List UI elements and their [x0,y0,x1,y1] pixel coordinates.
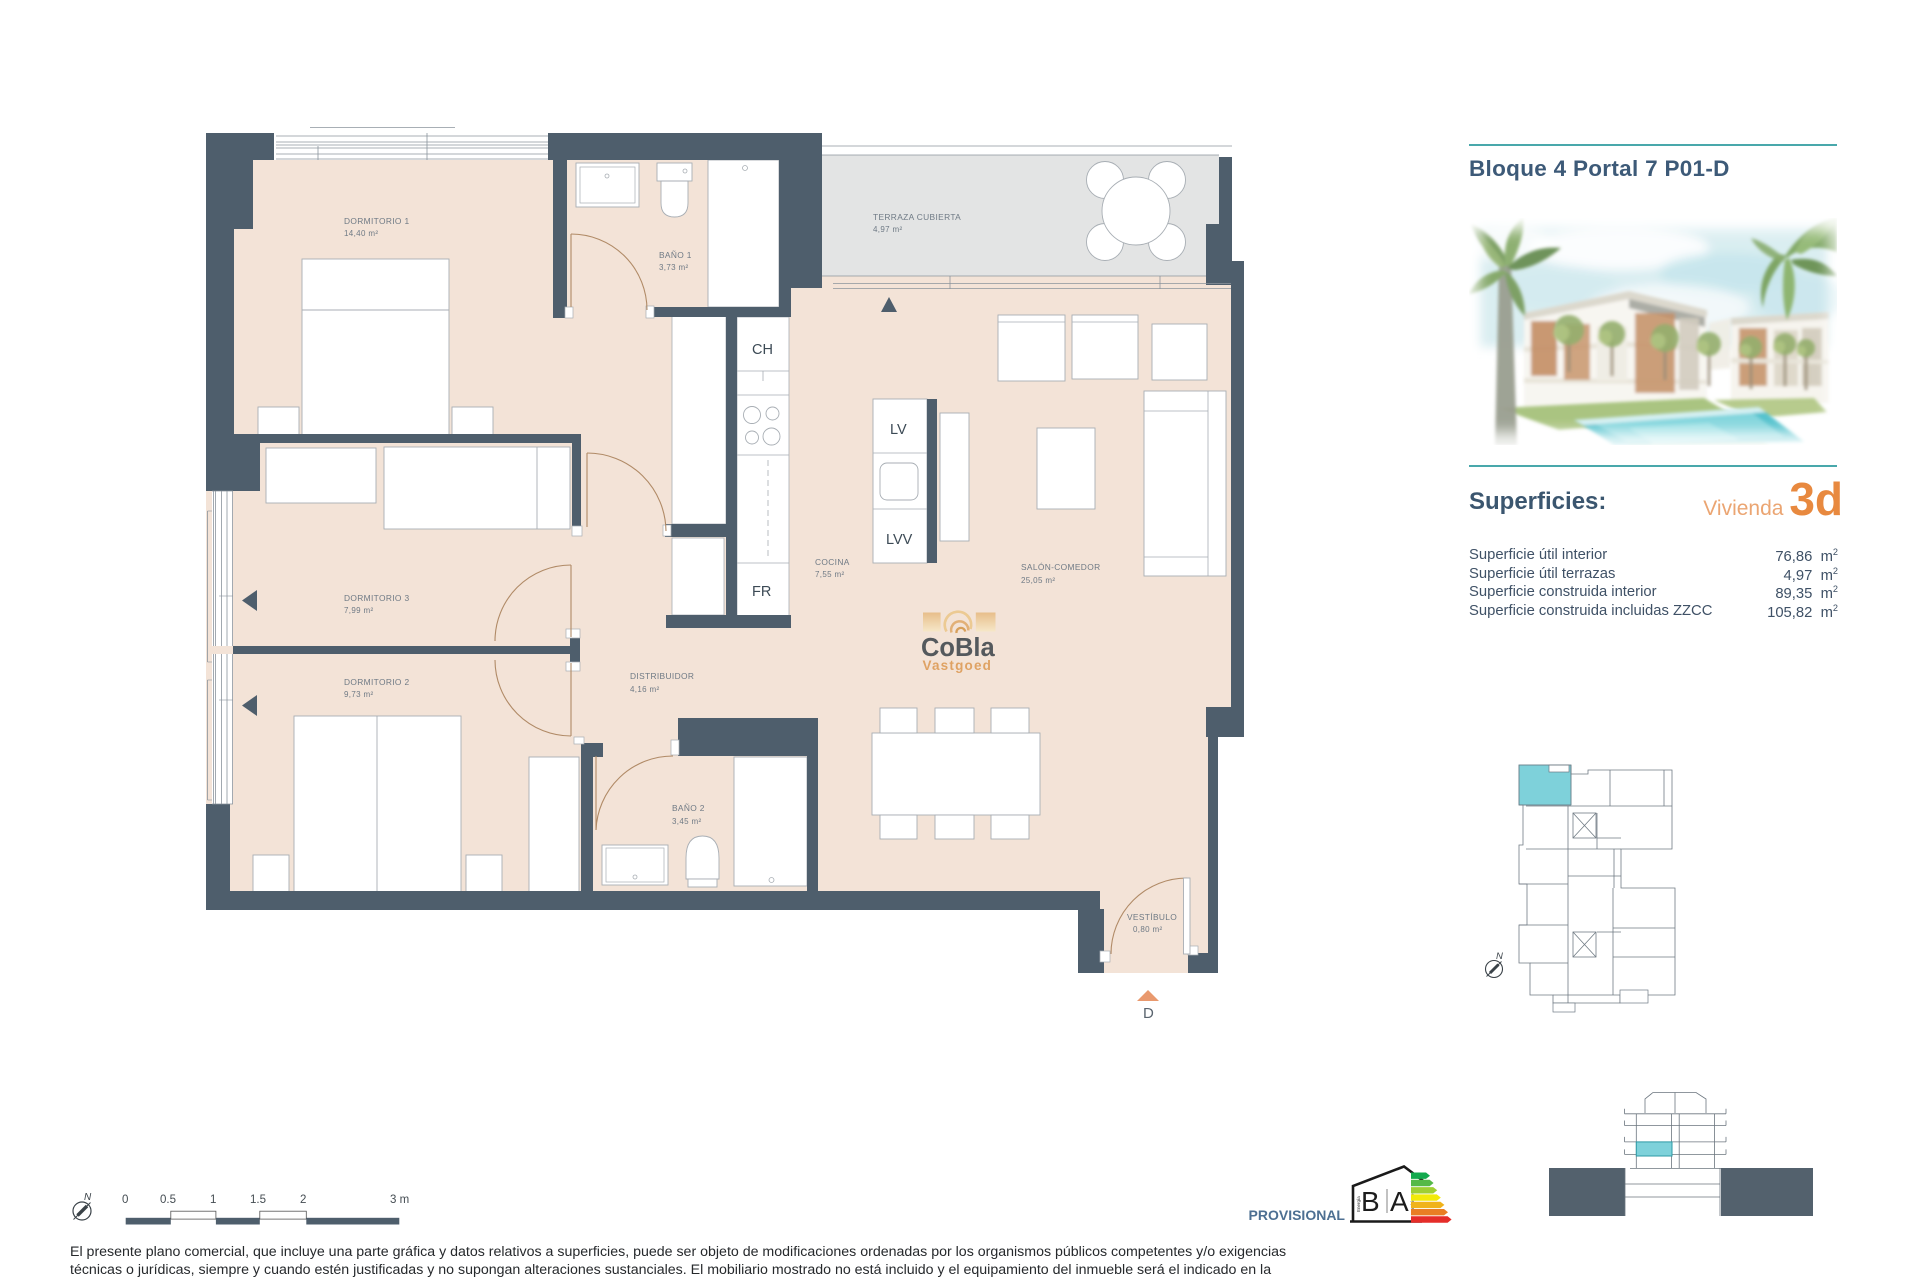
svg-text:1: 1 [210,1194,216,1206]
svg-text:TERRAZA CUBIERTA: TERRAZA CUBIERTA [873,212,961,222]
svg-text:7,55 m²: 7,55 m² [815,570,845,579]
svg-text:CH: CH [752,342,773,358]
svg-text:4,16 m²: 4,16 m² [630,685,660,694]
svg-text:B: B [1361,1186,1380,1217]
svg-text:3 m: 3 m [390,1194,409,1206]
svg-text:1.5: 1.5 [250,1194,266,1206]
svg-text:4,97 m²: 4,97 m² [873,225,903,234]
svg-text:FR: FR [752,584,771,600]
svg-text:A: A [1390,1186,1409,1217]
svg-text:DISTRIBUIDOR: DISTRIBUIDOR [630,671,694,681]
svg-text:SALÓN-COMEDOR: SALÓN-COMEDOR [1021,562,1100,572]
svg-text:Emisiones: Emisiones [1410,1190,1415,1212]
svg-text:0: 0 [122,1194,128,1206]
svg-text:LV: LV [890,422,907,438]
svg-text:2: 2 [300,1194,306,1206]
svg-text:DORMITORIO 3: DORMITORIO 3 [344,593,409,603]
svg-text:9,73 m²: 9,73 m² [344,690,374,699]
svg-text:3,45 m²: 3,45 m² [672,817,702,826]
svg-text:N: N [84,1192,92,1203]
svg-text:Vastgoed: Vastgoed [923,658,993,673]
svg-text:Energía: Energía [1356,1196,1361,1212]
svg-text:COCINA: COCINA [815,557,850,567]
svg-text:BAÑO 1: BAÑO 1 [659,250,692,260]
svg-text:LVV: LVV [886,532,913,548]
svg-text:0.5: 0.5 [160,1194,176,1206]
svg-text:DORMITORIO 1: DORMITORIO 1 [344,216,409,226]
svg-text:7,99 m²: 7,99 m² [344,606,374,615]
svg-text:0,80 m²: 0,80 m² [1133,925,1163,934]
svg-text:VESTÍBULO: VESTÍBULO [1127,912,1177,922]
svg-text:D: D [1143,1005,1154,1022]
svg-text:14,40 m²: 14,40 m² [344,229,378,238]
svg-text:BAÑO 2: BAÑO 2 [672,803,705,813]
svg-text:25,05 m²: 25,05 m² [1021,576,1055,585]
svg-text:3,73 m²: 3,73 m² [659,263,689,272]
svg-text:DORMITORIO 2: DORMITORIO 2 [344,677,409,687]
svg-text:N: N [1496,951,1503,962]
